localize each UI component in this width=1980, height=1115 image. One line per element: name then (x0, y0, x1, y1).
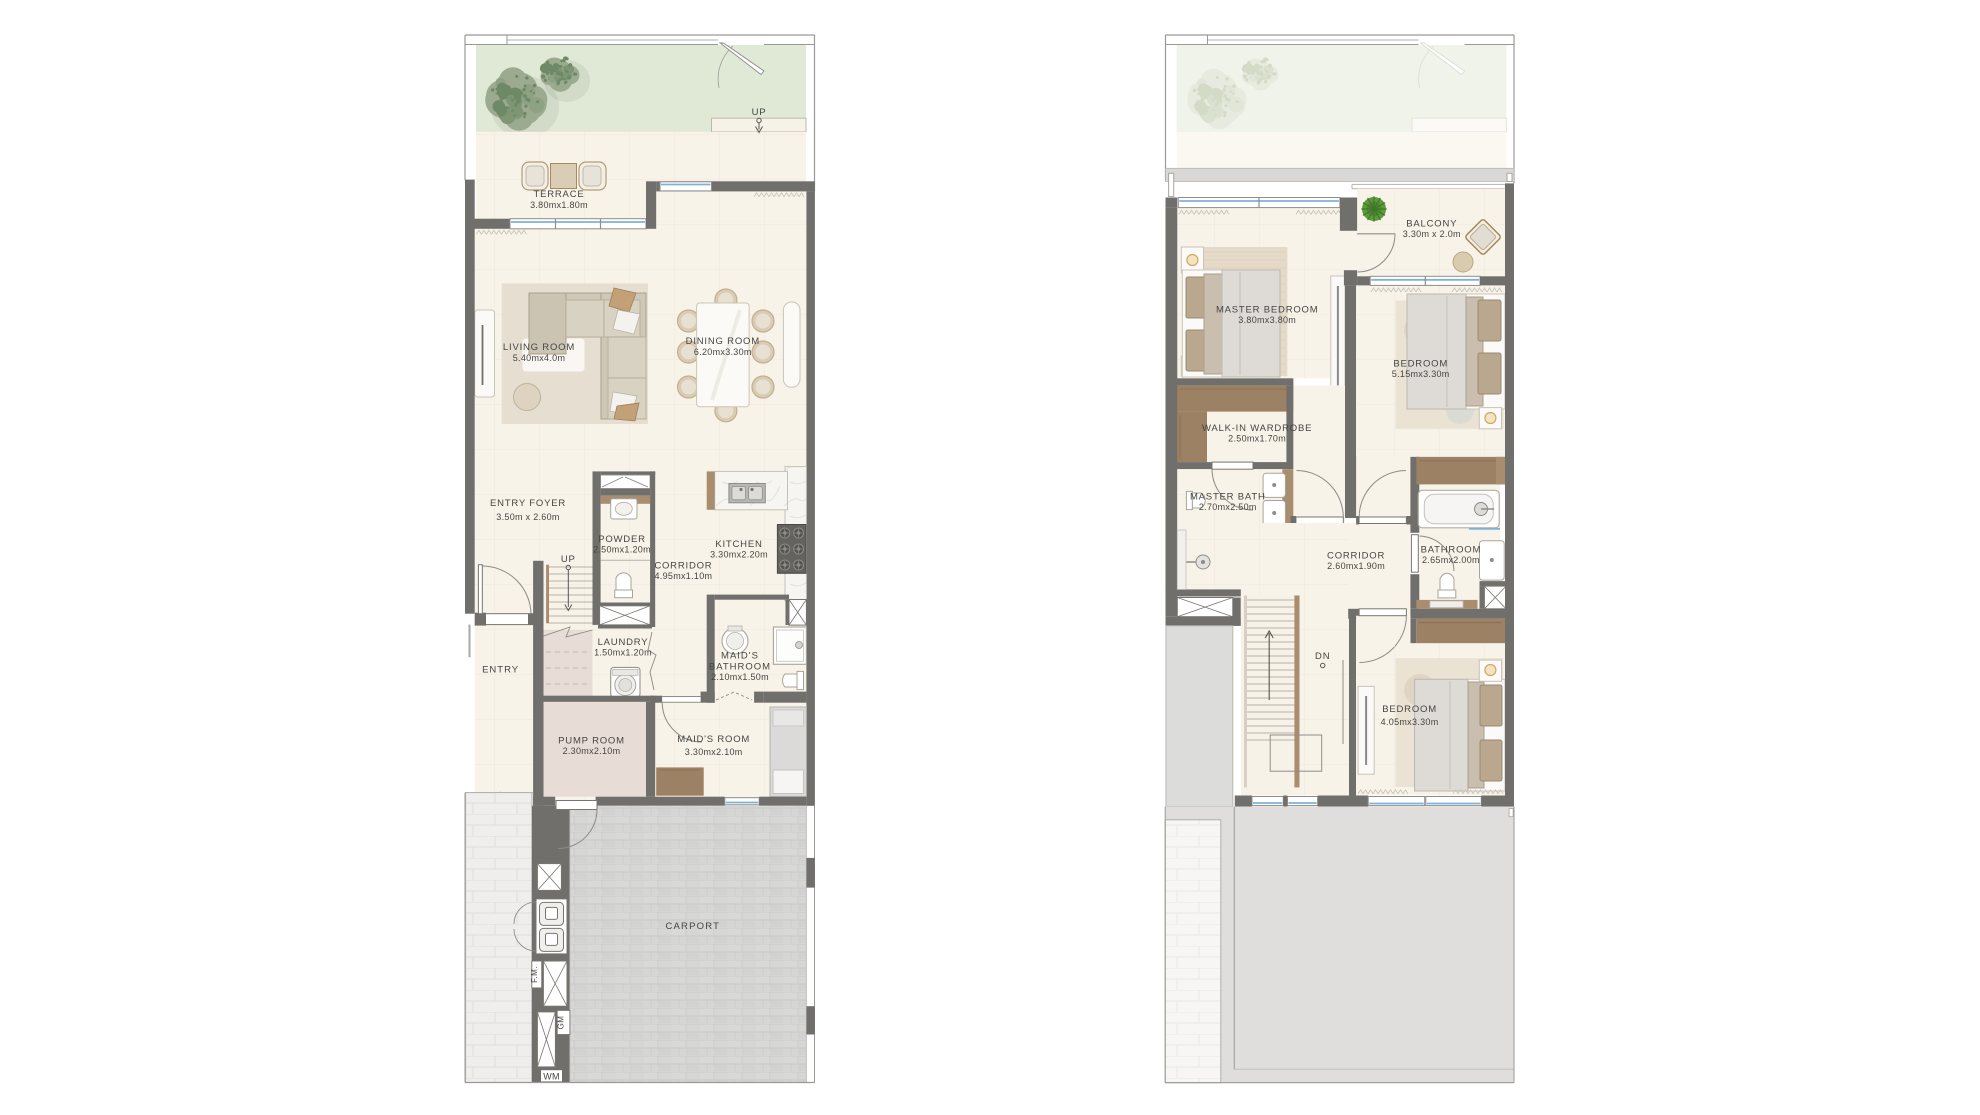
svg-text:2.10mx1.50m: 2.10mx1.50m (711, 672, 769, 682)
svg-text:UP: UP (561, 554, 576, 565)
svg-text:2.30mx2.10m: 2.30mx2.10m (563, 746, 621, 756)
svg-text:2.70mx2.50m: 2.70mx2.50m (1199, 502, 1257, 512)
svg-text:CORRIDOR: CORRIDOR (1327, 551, 1385, 562)
svg-text:LIVING ROOM: LIVING ROOM (503, 342, 575, 353)
svg-text:KITCHEN: KITCHEN (715, 539, 762, 550)
svg-text:2.50mx1.70m: 2.50mx1.70m (1228, 434, 1286, 444)
svg-text:TERRACE: TERRACE (534, 189, 585, 200)
svg-text:BEDROOM: BEDROOM (1393, 359, 1448, 370)
svg-text:LAUNDRY: LAUNDRY (598, 637, 649, 648)
svg-text:4.05mx3.30m: 4.05mx3.30m (1381, 717, 1439, 727)
svg-text:2.60mx1.90m: 2.60mx1.90m (1327, 561, 1385, 571)
svg-text:POWDER: POWDER (598, 534, 646, 545)
svg-text:BATHROOM: BATHROOM (709, 662, 771, 673)
svg-text:MAID'S ROOM: MAID'S ROOM (677, 734, 750, 745)
svg-text:3.30mx2.20m: 3.30mx2.20m (710, 550, 768, 560)
svg-text:PUMP ROOM: PUMP ROOM (558, 736, 625, 747)
svg-text:3.30mx2.10m: 3.30mx2.10m (685, 747, 743, 757)
svg-text:2.65mx2.00m: 2.65mx2.00m (1422, 555, 1480, 565)
svg-text:UP: UP (752, 107, 767, 118)
svg-text:CARPORT: CARPORT (665, 921, 720, 932)
svg-text:WALK-IN WARDROBE: WALK-IN WARDROBE (1202, 423, 1312, 434)
svg-text:5.15mx3.30m: 5.15mx3.30m (1392, 369, 1450, 379)
svg-text:3.80mx3.80m: 3.80mx3.80m (1238, 315, 1296, 325)
svg-text:3.80mx1.80m: 3.80mx1.80m (530, 200, 588, 210)
svg-text:2.50mx1.20m: 2.50mx1.20m (593, 545, 651, 555)
svg-text:ENTRY: ENTRY (482, 665, 519, 676)
svg-text:4.95mx1.10m: 4.95mx1.10m (654, 571, 712, 581)
svg-text:DINING ROOM: DINING ROOM (686, 336, 760, 347)
svg-text:MASTER BATH: MASTER BATH (1190, 492, 1266, 503)
svg-text:6.20mx3.30m: 6.20mx3.30m (694, 347, 752, 357)
svg-text:MAID'S: MAID'S (721, 651, 759, 662)
svg-text:DN: DN (1315, 651, 1330, 662)
svg-text:BEDROOM: BEDROOM (1382, 704, 1437, 715)
svg-text:MASTER BEDROOM: MASTER BEDROOM (1216, 305, 1319, 316)
svg-text:WM: WM (543, 1072, 560, 1082)
svg-text:1.50mx1.20m: 1.50mx1.20m (594, 648, 652, 658)
svg-text:ENTRY FOYER: ENTRY FOYER (490, 498, 566, 509)
svg-text:BALCONY: BALCONY (1406, 219, 1457, 230)
svg-text:F.M.: F.M. (530, 966, 539, 983)
svg-text:3.30m x 2.0m: 3.30m x 2.0m (1403, 229, 1461, 239)
svg-text:GM: GM (557, 1016, 566, 1030)
svg-text:3.50m x 2.60m: 3.50m x 2.60m (496, 512, 559, 522)
svg-text:5.40mx4.0m: 5.40mx4.0m (513, 353, 566, 363)
svg-text:CORRIDOR: CORRIDOR (654, 561, 712, 572)
svg-text:BATHROOM: BATHROOM (1421, 545, 1482, 556)
